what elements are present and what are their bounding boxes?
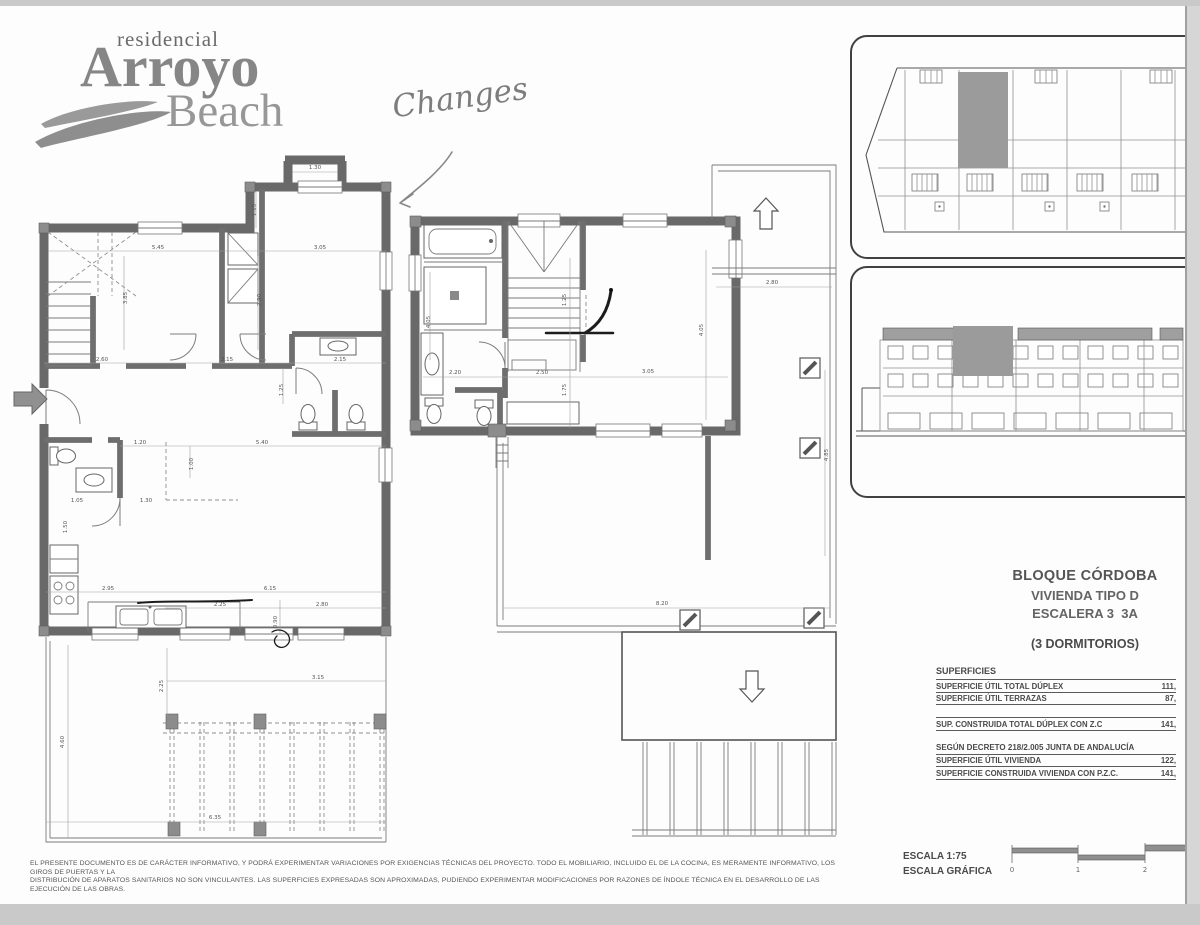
title-block: BLOQUE CÓRDOBA VIVIENDA TIPO D ESCALERA … <box>1000 568 1170 651</box>
dimension-label: 5.45 <box>152 245 165 251</box>
row-label: SUPERFICIE ÚTIL TOTAL DÚPLEX <box>936 682 1063 691</box>
unit-location-highlight <box>953 326 1013 376</box>
dimension-label: 1.25 <box>279 383 285 396</box>
up-arrow-icon <box>754 198 778 229</box>
terraces <box>497 165 836 740</box>
table-header: SUPERFICIES <box>936 666 1176 676</box>
dimension-label: 2.80 <box>766 280 779 286</box>
scanned-floorplan-page: 1.301.155.453.053.852.902.603.152.151.25… <box>0 0 1200 925</box>
row-label: SUPERFICIE CONSTRUIDA VIVIENDA CON P.Z.C… <box>936 769 1118 778</box>
drain-icon <box>680 610 700 630</box>
vanity-counter <box>507 402 579 424</box>
dimension-label: 1.05 <box>71 498 84 504</box>
legal-disclaimer: EL PRESENTE DOCUMENTO ES DE CARÁCTER INF… <box>30 860 838 894</box>
dimension-label: 8.20 <box>656 601 669 607</box>
dimension-label: 1.30 <box>309 165 322 171</box>
dimension-label: 2.90 <box>257 293 263 306</box>
dimension-label: 3.15 <box>312 675 325 681</box>
site-key-plan <box>851 36 1200 258</box>
drain-icon <box>800 438 820 458</box>
pergola-lattice <box>632 742 836 836</box>
dimension-label: 3.85 <box>123 291 129 304</box>
down-arrow-icon <box>740 671 764 702</box>
disclaimer-line: DISTRIBUCIÓN DE APARATOS SANITARIOS NO S… <box>30 877 838 894</box>
staircase <box>46 282 91 366</box>
table-row: SUPERFICIE ÚTIL VIVIENDA 122, <box>936 754 1176 768</box>
dimension-label: 2.25 <box>159 679 165 692</box>
dimension-label: 1.30 <box>140 498 153 504</box>
decree-header: SEGÚN DECRETO 218/2.005 JUNTA DE ANDALUC… <box>936 743 1176 752</box>
graphic-scale-bar: 012 <box>1010 843 1200 874</box>
dimension-label: 2.60 <box>96 357 109 363</box>
row-label: SUP. CONSTRUIDA TOTAL DÚPLEX CON Z.C <box>936 720 1102 729</box>
table-row: SUPERFICIE ÚTIL TERRAZAS 87, <box>936 693 1176 706</box>
surface-areas-table: SUPERFICIES SUPERFICIE ÚTIL TOTAL DÚPLEX… <box>936 666 1176 780</box>
dimension-label: 2.95 <box>102 586 115 592</box>
scale-tick: 2 <box>1143 866 1147 874</box>
block-name: BLOQUE CÓRDOBA <box>1000 568 1170 584</box>
dimension-label: 4.60 <box>60 735 66 748</box>
dimension-label: 1.20 <box>134 440 147 446</box>
dimension-label: 4.05 <box>699 323 705 336</box>
dimension-label: 5.40 <box>256 440 269 446</box>
dimension-label: 6.35 <box>209 815 222 821</box>
dimension-label: 2.80 <box>316 602 329 608</box>
table-row: SUPERFICIE CONSTRUIDA VIVIENDA CON P.Z.C… <box>936 767 1176 780</box>
dimension-label: 1.15 <box>252 203 258 216</box>
table-row: SUP. CONSTRUIDA TOTAL DÚPLEX CON Z.C 141… <box>936 717 1176 731</box>
row-label: SUPERFICIE ÚTIL TERRAZAS <box>936 694 1047 703</box>
dimension-label: 4.05 <box>426 315 432 328</box>
handwritten-door-mark <box>546 288 613 333</box>
upper-floor-plan: 4.052.202.503.051.251.754.052.804.858.20 <box>409 165 836 836</box>
dimension-label: 2.25 <box>214 602 227 608</box>
dimension-label: 3.05 <box>642 369 655 375</box>
row-value: 87, <box>1165 694 1176 703</box>
table-row: SUPERFICIE ÚTIL TOTAL DÚPLEX 111, <box>936 679 1176 693</box>
dimension-labels-upper: 4.052.202.503.051.251.754.052.804.858.20 <box>426 280 830 607</box>
scale-tick: 0 <box>1010 866 1014 874</box>
pergola-lattice <box>163 722 386 834</box>
graphic-scale-label: ESCALA GRÁFICA <box>903 864 992 879</box>
building-elevation <box>851 267 1200 497</box>
dimension-label: 2.15 <box>334 357 347 363</box>
row-value: 111, <box>1162 682 1176 691</box>
row-label: SUPERFICIE ÚTIL VIVIENDA <box>936 756 1041 765</box>
lower-floor-plan: 1.301.155.453.053.852.902.603.152.151.25… <box>14 160 392 842</box>
scale-label: ESCALA 1:75 <box>903 849 992 864</box>
unit-location-highlight <box>958 72 1008 168</box>
dimension-label: 1.25 <box>562 293 568 306</box>
row-value: 141, <box>1161 720 1176 729</box>
scale-tick: 1 <box>1076 866 1080 874</box>
entrance-arrow-icon <box>14 384 47 414</box>
handwritten-arrow <box>400 152 452 207</box>
row-value: 122, <box>1161 756 1176 765</box>
bedrooms-label: (3 DORMITORIOS) <box>1000 637 1170 651</box>
dimension-label: 0.90 <box>273 615 279 628</box>
dimension-label: 1.00 <box>189 457 195 470</box>
bathroom-fixtures <box>421 225 505 395</box>
dimension-label: 4.85 <box>824 448 830 461</box>
dimension-label: 1.75 <box>562 383 568 396</box>
drain-icon <box>804 608 824 628</box>
stair-unit: ESCALERA 3 3A <box>1000 606 1170 621</box>
row-value: 141, <box>1161 769 1176 778</box>
staircase <box>508 278 580 328</box>
dimension-label: 2.20 <box>449 370 462 376</box>
handwritten-line <box>138 600 252 603</box>
logo-swoosh-icon <box>33 96 193 158</box>
dimension-label: 6.15 <box>264 586 277 592</box>
drain-icon <box>800 358 820 378</box>
dimension-label: 2.50 <box>536 370 549 376</box>
dimension-label: 1.50 <box>63 520 69 533</box>
disclaimer-line: EL PRESENTE DOCUMENTO ES DE CARÁCTER INF… <box>30 860 838 877</box>
scale-labels: ESCALA 1:75 ESCALA GRÁFICA <box>903 849 992 879</box>
dwelling-type: VIVIENDA TIPO D <box>1000 588 1170 603</box>
dimension-label: 3.15 <box>221 357 234 363</box>
dimension-label: 3.05 <box>314 245 327 251</box>
kitchen-fixtures <box>50 545 240 632</box>
